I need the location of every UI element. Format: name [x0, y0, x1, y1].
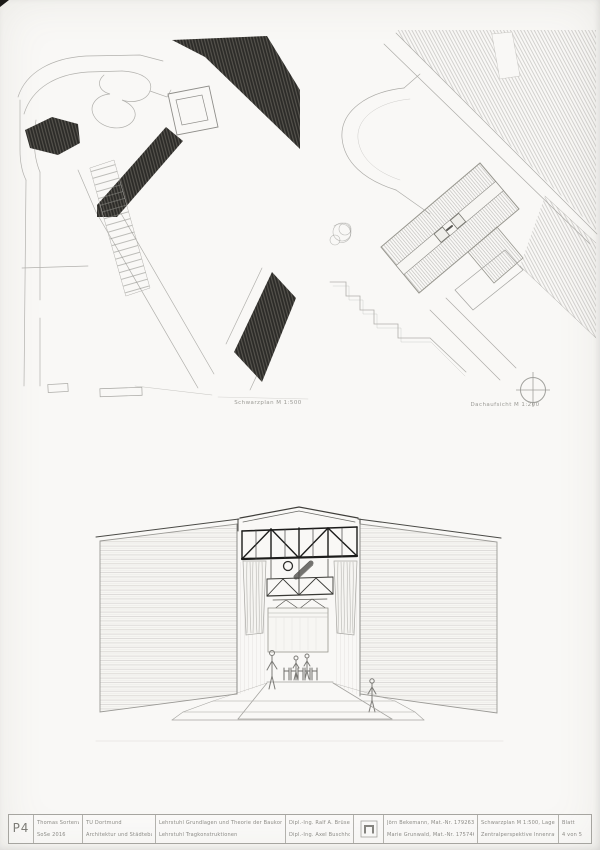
sheet-number: 4 von 5 — [562, 829, 590, 841]
students-cell: Jörn Bekemann, Mat.-Nr. 179263 Marie Gru… — [384, 815, 478, 843]
clerestory-gable — [240, 507, 358, 522]
tree-scribble — [330, 223, 351, 245]
outlined-building — [168, 86, 218, 135]
interior-perspective — [96, 507, 503, 741]
curtain-left — [243, 561, 266, 635]
student-1: Jörn Bekemann, Mat.-Nr. 179263 — [387, 817, 474, 829]
tutors-cell: Dipl.-Ing. Ralf A. Brüse Dipl.-Ing. Axel… — [286, 815, 354, 843]
curtain-right — [334, 561, 357, 635]
steel-truss-main — [242, 527, 357, 559]
chair-2: Lehrstuhl Tragkonstruktionen — [159, 829, 282, 841]
left-wall — [100, 524, 237, 712]
sheet-label: Blatt — [562, 817, 590, 829]
right-wall — [360, 524, 497, 713]
project-building-roof — [381, 163, 523, 310]
sheet-number-cell: Blatt 4 von 5 — [559, 815, 593, 843]
contents-2: Zentralperspektive Innenraum — [481, 829, 555, 841]
drawing-linework — [0, 0, 600, 850]
stage-chairs — [284, 668, 317, 680]
chair-logo-icon — [360, 820, 378, 838]
steel-truss-second — [267, 577, 333, 596]
sheet-code: P4 — [9, 815, 34, 843]
small-plots — [48, 383, 142, 396]
left-plan-caption: Schwarzplan M 1:500 — [218, 400, 318, 406]
hatched-bar — [296, 563, 311, 577]
student-2: Marie Grunwald, Mat.-Nr. 175746 — [387, 829, 474, 841]
right-plan-caption: Dachaufsicht M 1:200 — [450, 402, 560, 408]
dark-mass-bottom-band — [234, 272, 296, 382]
university-cell: TU Dortmund Architektur und Städtebau — [83, 815, 156, 843]
dark-mass-left-blob — [25, 117, 80, 155]
faculty-name: Architektur und Städtebau — [86, 829, 152, 841]
tutor-1: Dipl.-Ing. Ralf A. Brüse — [289, 817, 350, 829]
project-name: Thomas Sortenwald — [37, 817, 79, 829]
chairs-cell: Lehrstuhl Grundlagen und Theorie der Bau… — [156, 815, 286, 843]
scanned-drawing-sheet: Schwarzplan M 1:500 Dachaufsicht M 1:200… — [0, 0, 600, 850]
contents-cell: Schwarzplan M 1:500, Lageplan M 1:200 Ze… — [478, 815, 559, 843]
project-cell: Thomas Sortenwald SoSe 2016 — [34, 815, 83, 843]
tutor-2: Dipl.-Ing. Axel Buschhorst — [289, 829, 350, 841]
project-semester: SoSe 2016 — [37, 829, 79, 841]
dark-building-masses — [25, 36, 300, 382]
site-plan-roof — [330, 30, 597, 380]
figure-left — [267, 651, 277, 690]
title-block: P4 Thomas Sortenwald SoSe 2016 TU Dortmu… — [8, 814, 592, 844]
site-wall-zigzag — [330, 282, 466, 376]
site-plan-schwarzplan — [18, 36, 308, 399]
logo-cell — [354, 815, 384, 843]
truss-detail — [284, 561, 314, 579]
spotlight-circle — [284, 562, 293, 571]
contents-1: Schwarzplan M 1:500, Lageplan M 1:200 — [481, 817, 555, 829]
chair-1: Lehrstuhl Grundlagen und Theorie der Bau… — [159, 817, 282, 829]
university-name: TU Dortmund — [86, 817, 152, 829]
